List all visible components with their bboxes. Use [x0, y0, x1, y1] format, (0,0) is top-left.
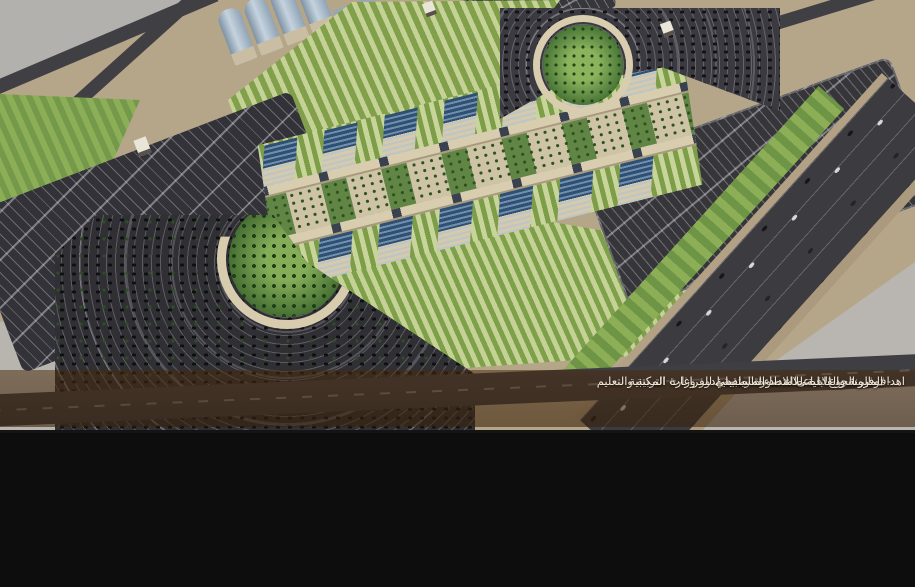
goal-line-3: - المرونة والقابلية للامتداد المستقبلي [715, 372, 905, 390]
palm-courtyard [543, 25, 623, 105]
aerial-site-render: اهداف المشروع :- اعطاء صورة ريادية لدور … [0, 0, 915, 430]
northeast-curved-parking [500, 8, 780, 206]
thumbnail-strip: GROUND FLOOR PLAN [0, 430, 915, 587]
architectural-presentation-board: اهداف المشروع :- اعطاء صورة ريادية لدور … [0, 0, 915, 587]
project-goals-overlay: اهداف المشروع :- اعطاء صورة ريادية لدور … [0, 370, 915, 427]
